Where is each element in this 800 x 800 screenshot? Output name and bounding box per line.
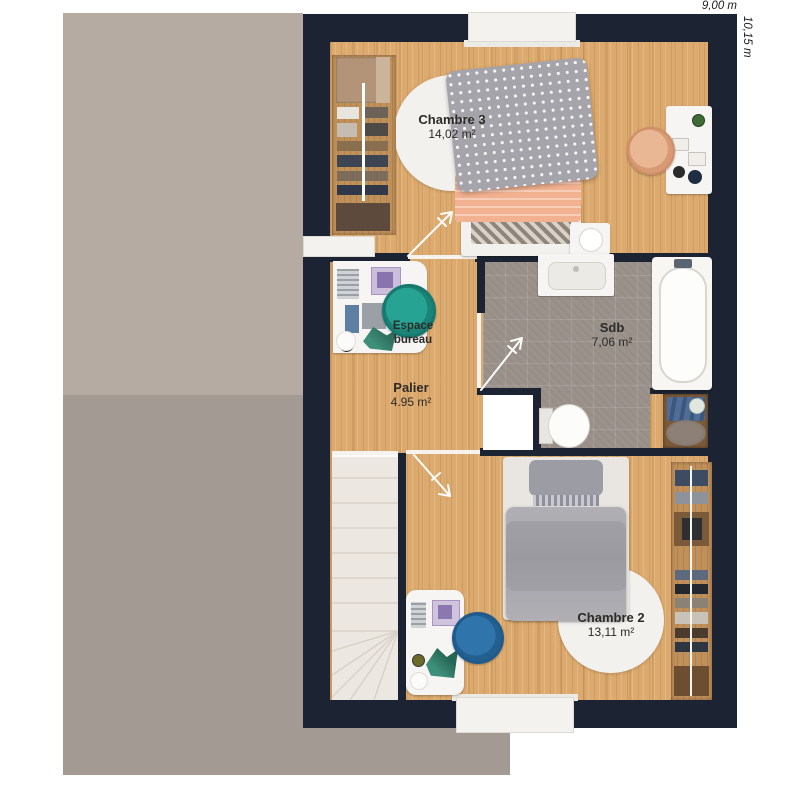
bowl-white xyxy=(336,331,356,351)
storage-box xyxy=(336,203,390,231)
bowl-white xyxy=(410,672,428,690)
room-name: Palier xyxy=(366,380,456,395)
staircase xyxy=(332,453,398,700)
folded-clothes xyxy=(364,107,388,118)
plant-leafy xyxy=(426,648,458,678)
fur-rug xyxy=(666,420,706,446)
room-label-chambre2: Chambre 2 13,11 m² xyxy=(556,610,666,639)
notebook xyxy=(411,602,426,628)
room-area: 13,11 m² xyxy=(556,625,666,639)
chair-chambre3 xyxy=(627,127,675,175)
room-label-sdb: Sdb 7,06 m² xyxy=(560,320,664,349)
closet-nook xyxy=(663,394,708,448)
laptop-screen xyxy=(377,272,393,288)
room-area: 7,06 m² xyxy=(560,335,664,349)
door-swing-icon xyxy=(398,198,460,260)
toilet-bowl xyxy=(548,404,590,448)
room-label-chambre3: Chambre 3 14,02 m² xyxy=(396,112,508,141)
laptop-screen xyxy=(438,605,452,619)
book-blue xyxy=(345,305,359,333)
sink-drain xyxy=(573,266,579,272)
room-name: Espace bureau xyxy=(383,320,443,347)
decor-ball-navy xyxy=(688,170,702,184)
room-label-espace-bureau: Espace bureau xyxy=(383,320,443,347)
plant-small xyxy=(412,654,425,667)
lamp xyxy=(579,228,603,252)
bed-pillow xyxy=(529,460,603,496)
folded-clothes xyxy=(362,123,388,136)
shelf-divider xyxy=(362,83,365,201)
folded-clothes xyxy=(337,107,359,119)
room-name: Sdb xyxy=(560,320,664,335)
dimension-width-label: 9,00 m xyxy=(640,0,737,12)
wardrobe-chambre2 xyxy=(671,462,712,700)
sink-vanity xyxy=(538,254,614,296)
laundry-towel xyxy=(689,398,705,414)
folded-clothes xyxy=(337,123,357,137)
floor-plan-canvas: Chambre 3 14,02 m² Espace bureau Palier … xyxy=(0,0,800,800)
notebook xyxy=(337,269,359,299)
decor-ball-black xyxy=(673,166,685,178)
room-name: Chambre 3 xyxy=(396,112,508,127)
paper xyxy=(688,152,706,166)
bed-duvet xyxy=(506,507,626,621)
folded-shirt xyxy=(682,518,702,540)
bathtub-basin xyxy=(659,267,707,383)
bed-chambre2 xyxy=(503,455,629,623)
room-area: 4.95 m² xyxy=(366,395,456,409)
chair-chambre2 xyxy=(452,612,504,664)
window-top xyxy=(468,12,576,42)
stairs-top-threshold xyxy=(332,451,398,455)
wall-bathroom-left xyxy=(477,255,485,313)
dimension-height-label: 10,15 m xyxy=(741,16,753,58)
room-label-palier: Palier 4.95 m² xyxy=(366,380,456,409)
roof-surface-upper xyxy=(63,13,303,395)
staircase-steps xyxy=(332,453,398,700)
plant xyxy=(692,114,705,127)
nightstand-chambre3 xyxy=(570,223,610,255)
wardrobe-chambre3 xyxy=(332,55,396,235)
bed-pillow-trim xyxy=(533,495,599,506)
window-bottom xyxy=(456,697,574,733)
room-area: 14,02 m² xyxy=(396,127,508,141)
door-swing-icon xyxy=(410,452,462,506)
door-swing-icon xyxy=(478,330,532,392)
window-left xyxy=(303,236,375,257)
toilet xyxy=(539,403,589,447)
wc-duct xyxy=(483,395,533,450)
room-name: Chambre 2 xyxy=(556,610,666,625)
shelf-divider xyxy=(690,466,692,696)
wall-stairs-right xyxy=(398,453,406,700)
faucet xyxy=(674,259,692,268)
